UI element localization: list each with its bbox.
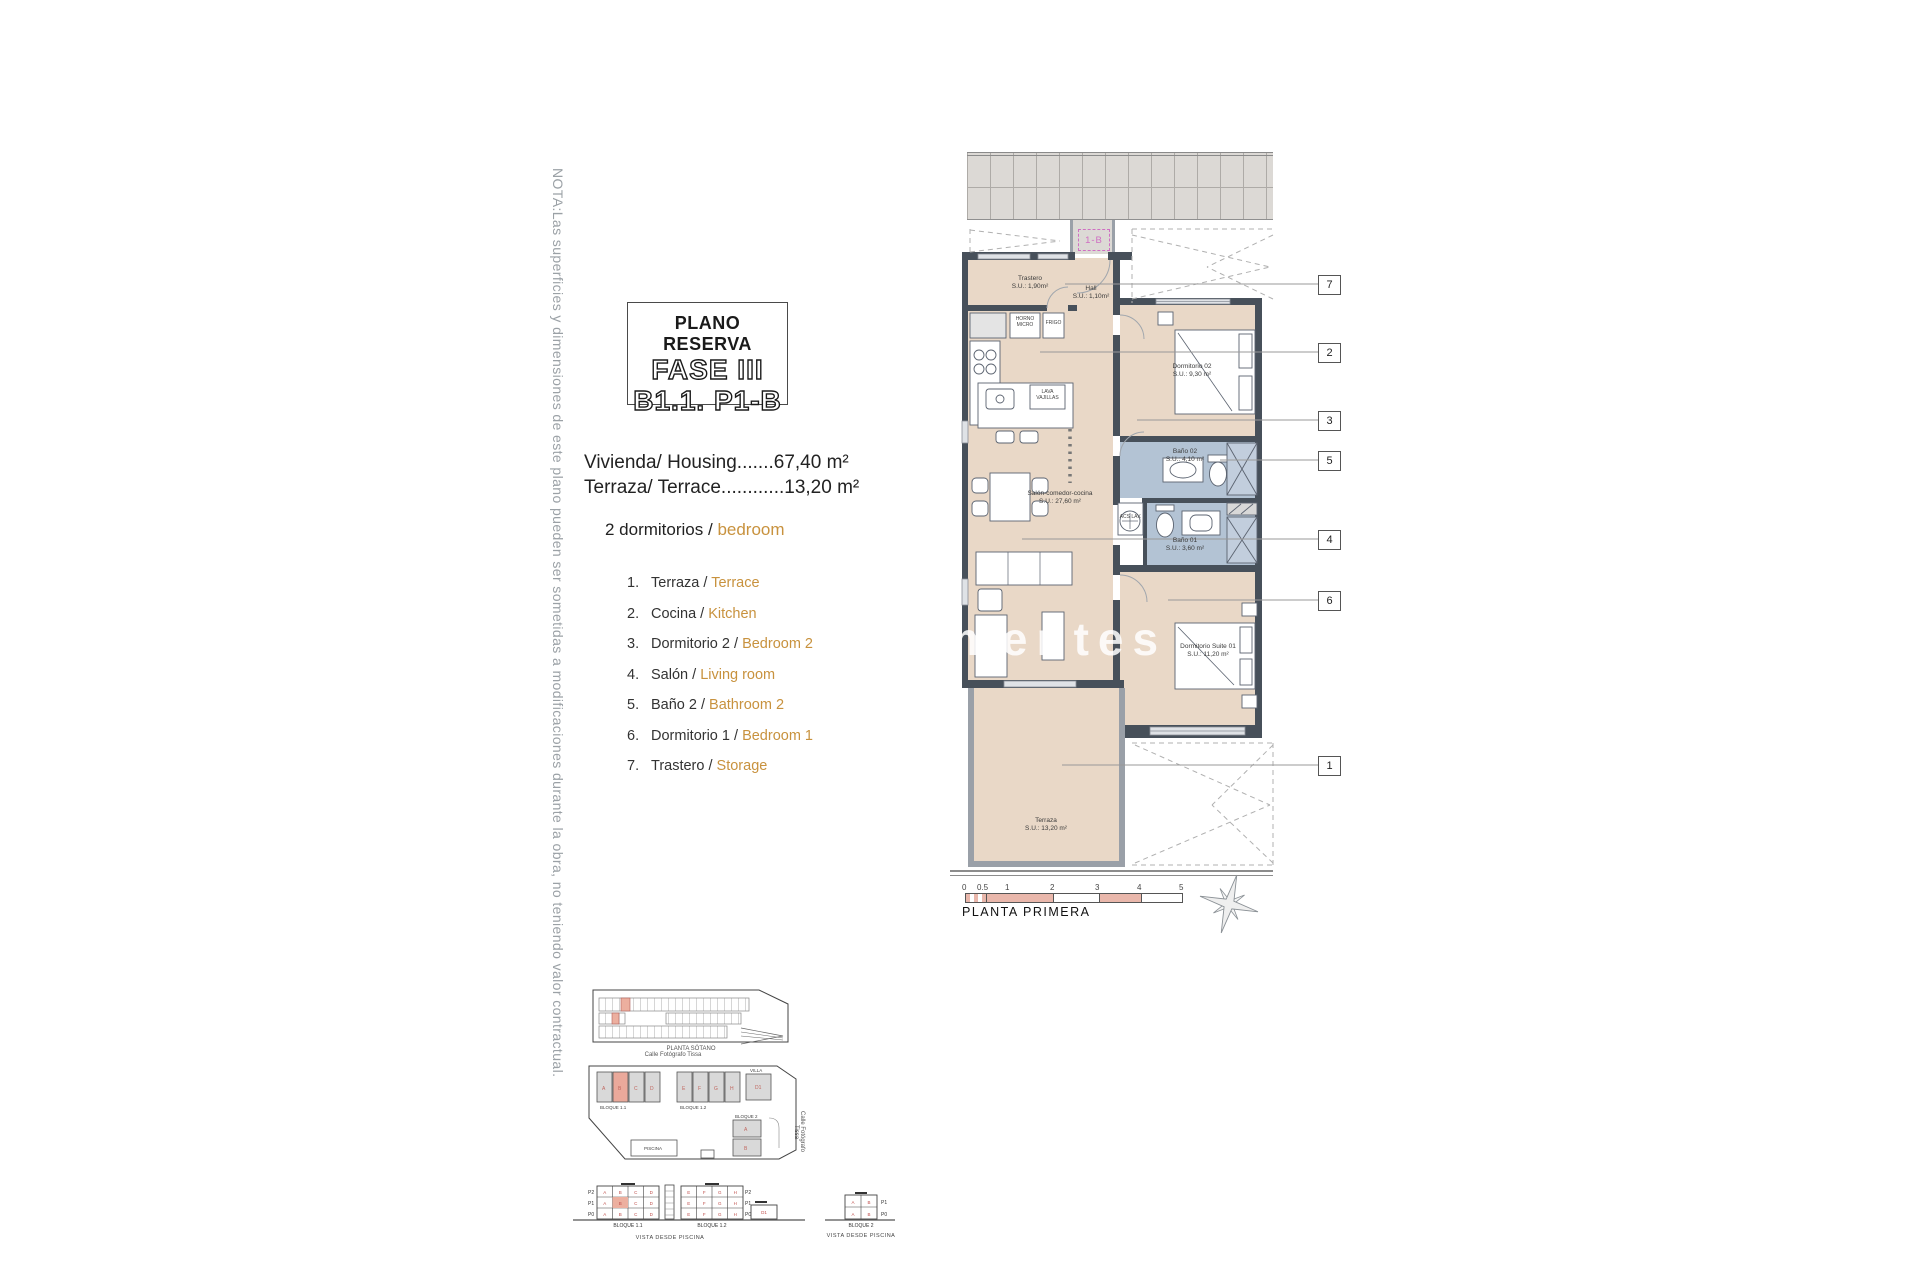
elev-cell: F xyxy=(703,1201,706,1206)
site-bloque11-label: BLOQUE 1.1 xyxy=(600,1105,627,1110)
elev-cell: B xyxy=(619,1212,622,1217)
elev-cell: A xyxy=(603,1190,606,1195)
elev-cell: B xyxy=(867,1212,870,1217)
elev-cell: B xyxy=(619,1201,622,1206)
site-unit-letter: H xyxy=(730,1086,734,1092)
elev-cell: A xyxy=(603,1212,606,1217)
callout-5: 5 xyxy=(1318,451,1341,471)
site-linework: BLOQUE 1.1 BLOQUE 1.2 VILLA BLOQUE 2 PIS… xyxy=(583,1060,805,1168)
oven-label: HORNO MICRO xyxy=(1011,317,1039,329)
elev-row-label: P2 xyxy=(588,1190,594,1196)
site-piscina-label: PISCINA xyxy=(644,1146,662,1151)
legend-item: 5.Baño 2 / Bathroom 2 xyxy=(627,697,813,713)
phase-label: FASE III xyxy=(628,355,787,386)
elev-cell: G xyxy=(718,1190,722,1195)
room-label-suite: Dormitorio Suite 01S.U.: 11,20 m² xyxy=(1170,643,1246,660)
elev-cell: E xyxy=(687,1190,690,1195)
legend-item: 7.Trastero / Storage xyxy=(627,758,813,774)
contract-note: NOTA:Las superficies y dimensiones de es… xyxy=(550,168,566,1088)
watermark: mentes xyxy=(952,612,1167,666)
elev-row-label: P2 xyxy=(745,1190,751,1196)
elev-row-label: P1 xyxy=(588,1201,594,1207)
unit-tag: 1-B xyxy=(1078,229,1110,251)
housing-area: Vivienda/ Housing.......67,40 m² xyxy=(584,450,859,475)
elev-row-label: P1 xyxy=(881,1200,887,1206)
elev-cell: H xyxy=(734,1212,737,1217)
site-unit-letter: F xyxy=(698,1086,701,1092)
title-box: PLANO RESERVA FASE III B1.1. P1-B xyxy=(627,302,788,405)
elev-cell: B xyxy=(619,1190,622,1195)
elev-cell: A xyxy=(603,1201,606,1206)
floor-plan: 1-B TrasteroS.U.: 1,90m² HallS.U.: 1,10m… xyxy=(960,145,1360,935)
fridge-label: FRIGO xyxy=(1043,321,1064,327)
callout-6: 6 xyxy=(1318,591,1341,611)
room-label-dorm02: Dormitorio 02S.U.: 9,30 m² xyxy=(1157,363,1227,380)
elev-row-label: P0 xyxy=(881,1212,887,1218)
legend-item: 3.Dormitorio 2 / Bedroom 2 xyxy=(627,636,813,652)
floor-title: PLANTA PRIMERA xyxy=(962,905,1090,919)
room-legend: 1.Terraza / Terrace 2.Cocina / Kitchen 3… xyxy=(627,575,813,789)
callout-7: 7 xyxy=(1318,275,1341,295)
site-unit-letter: C xyxy=(634,1086,638,1092)
room-label-bano01: Baño 01S.U.: 3,60 m² xyxy=(1150,537,1220,554)
elev-cell: B xyxy=(867,1200,870,1205)
garage-plan: PLANTA SÓTANO xyxy=(591,988,791,1058)
room-label-trastero: TrasteroS.U.: 1,90m² xyxy=(995,275,1065,292)
site-villa-label: VILLA xyxy=(750,1068,762,1073)
bedrooms-line: 2 dormitorios / bedroom xyxy=(605,520,785,540)
street-label-top: Calle Fotógrafo Tissa xyxy=(613,1052,733,1058)
scale-tick: 2 xyxy=(1050,883,1054,892)
acs-lav-label: ACS LAV. xyxy=(1118,515,1143,521)
elev-cell: F xyxy=(703,1212,706,1217)
callout-1: 1 xyxy=(1318,756,1341,776)
street-label-right: Calle Fotógrafo Tissa xyxy=(795,1104,805,1160)
elev-row-label: P0 xyxy=(745,1212,751,1218)
floorplan-sheet: NOTA:Las superficies y dimensiones de es… xyxy=(0,0,1920,1280)
callout-4: 4 xyxy=(1318,530,1341,550)
room-label-bano02: Baño 02S.U.: 4,10 m² xyxy=(1150,448,1220,465)
elev-vista-label: VISTA DESDE PISCINA xyxy=(636,1235,705,1241)
legend-item: 2.Cocina / Kitchen xyxy=(627,606,813,622)
elevation-linework: P2 P1 P0 P2 P1 P0 P1 P0 A B C D A B C D … xyxy=(573,1183,903,1245)
site-bloque12-label: BLOQUE 1.2 xyxy=(680,1105,707,1110)
legend-item: 1.Terraza / Terrace xyxy=(627,575,813,591)
garage-linework xyxy=(591,988,791,1046)
site-unit-letter: G xyxy=(714,1086,718,1092)
elev-bloque2-label: BLOQUE 2 xyxy=(848,1223,873,1229)
room-label-salon: Salón-comedor-cocinaS.U.: 27,60 m² xyxy=(1015,490,1105,507)
room-label-terraza: TerrazaS.U.: 13,20 m² xyxy=(1011,817,1081,834)
scale-tick: 0.5 xyxy=(977,883,988,892)
room-label-hall: HallS.U.: 1,10m² xyxy=(1066,285,1116,302)
elev-vista-label: VISTA DESDE PISCINA xyxy=(827,1233,896,1239)
scale-tick: 1 xyxy=(1005,883,1009,892)
elev-row-label: P1 xyxy=(745,1201,751,1207)
elev-bloque12-label: BLOQUE 1.2 xyxy=(697,1223,726,1229)
scale-tick: 5 xyxy=(1179,883,1183,892)
plan-title: PLANO RESERVA xyxy=(628,313,787,355)
site-plan: Calle Fotógrafo Tissa BLOQUE 1.1 xyxy=(583,1052,823,1174)
elev-cell: D1 xyxy=(761,1210,767,1215)
terrace-area: Terraza/ Terrace............13,20 m² xyxy=(584,475,859,500)
elev-cell: H xyxy=(734,1201,737,1206)
callout-3: 3 xyxy=(1318,411,1341,431)
elev-bloque11-label: BLOQUE 1.1 xyxy=(613,1223,642,1229)
elev-cell: G xyxy=(718,1201,722,1206)
callout-2: 2 xyxy=(1318,343,1341,363)
elev-cell: E xyxy=(687,1212,690,1217)
elev-cell: G xyxy=(718,1212,722,1217)
legend-item: 6.Dormitorio 1 / Bedroom 1 xyxy=(627,728,813,744)
elev-cell: H xyxy=(734,1190,737,1195)
scale-tick: 3 xyxy=(1095,883,1099,892)
area-summary: Vivienda/ Housing.......67,40 m² Terraza… xyxy=(584,450,859,501)
unit-label: B1.1. P1-B xyxy=(628,386,787,417)
elev-row-label: P0 xyxy=(588,1212,594,1218)
legend-item: 4.Salón / Living room xyxy=(627,667,813,683)
dishwasher-label: LAVA VAJILLAS xyxy=(1031,390,1064,402)
elev-cell: F xyxy=(703,1190,706,1195)
elev-cell: A xyxy=(851,1200,854,1205)
site-unit-letter: D xyxy=(650,1086,654,1092)
compass-icon xyxy=(1198,873,1260,935)
elevations: P2 P1 P0 P2 P1 P0 P1 P0 A B C D A B C D … xyxy=(573,1183,903,1245)
elev-cell: A xyxy=(851,1212,854,1217)
scale-tick: 0 xyxy=(962,883,966,892)
site-bloque2-label: BLOQUE 2 xyxy=(735,1114,758,1119)
scale-tick: 4 xyxy=(1137,883,1141,892)
elev-cell: E xyxy=(687,1201,690,1206)
site-unit-letter: D1 xyxy=(755,1085,762,1091)
